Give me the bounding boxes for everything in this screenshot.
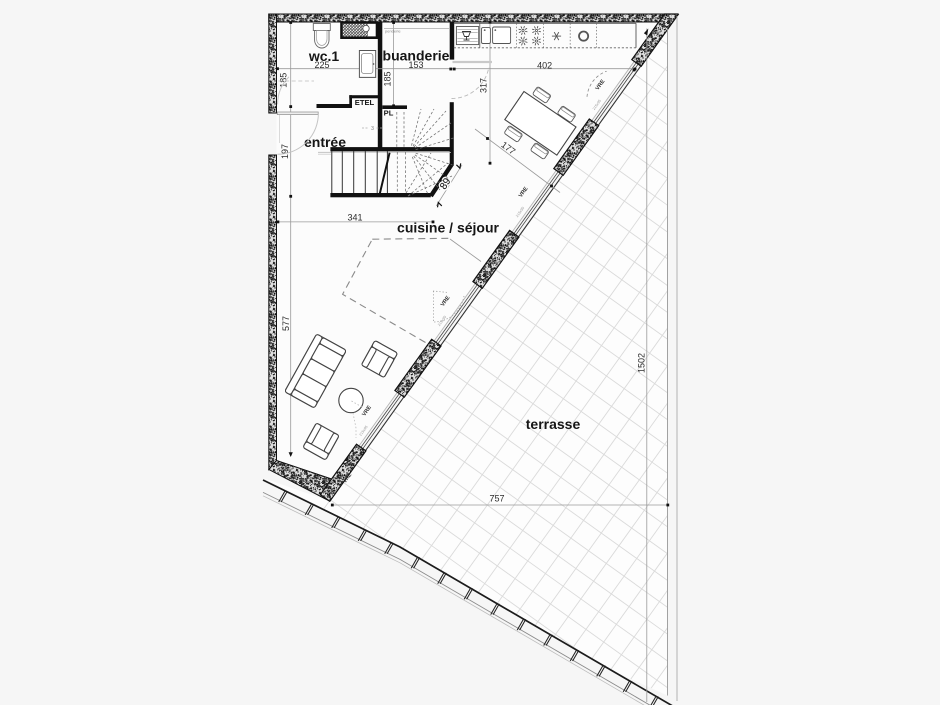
svg-text:PL: PL	[384, 109, 394, 118]
svg-text:3: 3	[371, 126, 374, 132]
svg-text:penderie: penderie	[385, 29, 401, 34]
svg-text:terrasse: terrasse	[526, 416, 581, 432]
svg-text:185: 185	[279, 73, 289, 88]
svg-text:341: 341	[347, 213, 362, 223]
svg-text:buanderie: buanderie	[383, 48, 450, 64]
svg-text:577: 577	[281, 316, 291, 331]
svg-text:402: 402	[537, 60, 552, 70]
svg-text:185: 185	[383, 71, 393, 86]
svg-text:cuisine / séjour: cuisine / séjour	[397, 220, 499, 236]
svg-text:entrée: entrée	[304, 134, 346, 150]
svg-text:wc.1: wc.1	[308, 48, 340, 64]
svg-text:757: 757	[489, 494, 504, 504]
svg-text:317: 317	[479, 78, 489, 93]
svg-text:ETEL: ETEL	[355, 98, 375, 107]
svg-text:197: 197	[280, 144, 290, 159]
svg-text:1502: 1502	[637, 353, 647, 373]
